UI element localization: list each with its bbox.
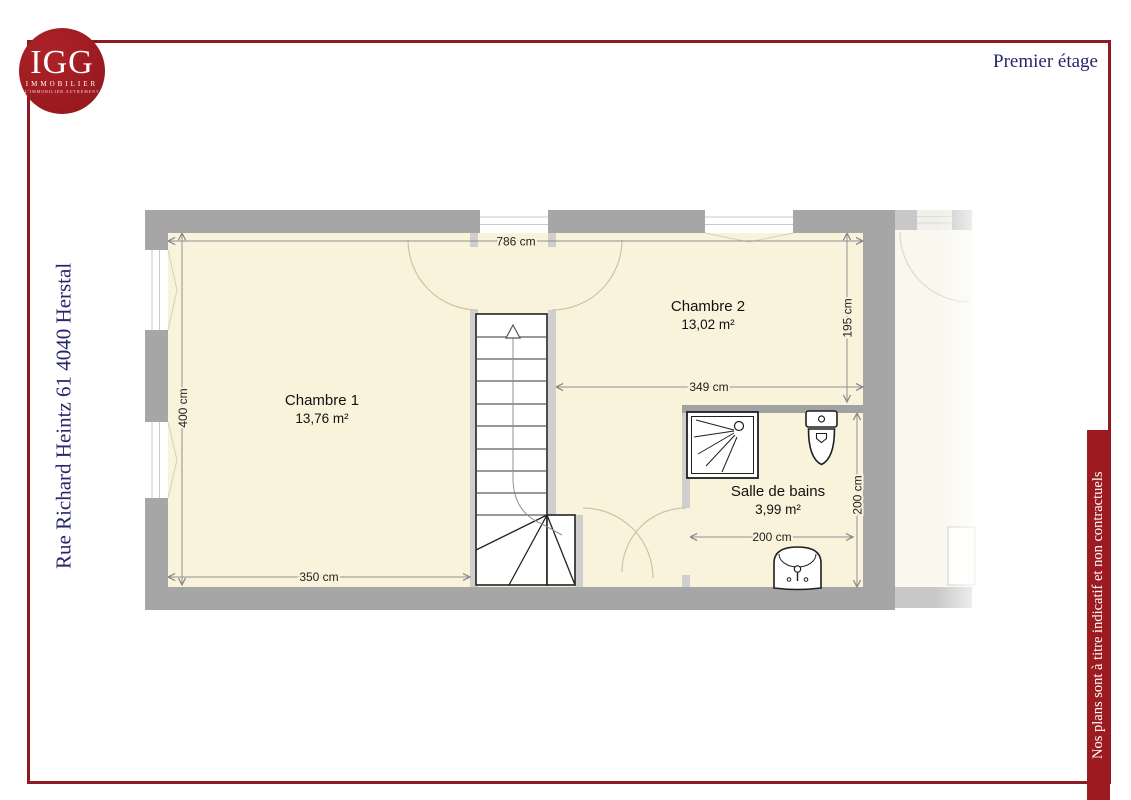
dim-label-chambre1-height: 400 cm [176, 388, 190, 427]
floor-plan: 786 cm 400 cm 350 cm 349 cm 195 cm 200 c… [130, 195, 990, 625]
shower-icon [687, 412, 758, 478]
room-label-chambre1: Chambre 1 [285, 392, 359, 409]
agency-logo: IGG IMMOBILIER L'IMMOBILIER AUTREMENT [19, 28, 105, 114]
dim-label-bathroom-height: 200 cm [851, 475, 865, 514]
room-area-bathroom: 3,99 m² [755, 502, 801, 517]
window-top-chambre2 [705, 210, 793, 233]
neighbour-fadeout [936, 195, 990, 625]
sink-icon [774, 547, 821, 590]
room-area-chambre1: 13,76 m² [295, 411, 349, 426]
dim-label-chambre2-height: 195 cm [841, 298, 855, 337]
room-label-bathroom: Salle de bains [731, 483, 825, 500]
logo-monogram: IGG [30, 48, 93, 78]
disclaimer-banner: Nos plans sont à titre indicatif et non … [1087, 430, 1110, 800]
window-left-lower [145, 422, 168, 498]
dim-label-chambre1-width: 350 cm [299, 570, 338, 584]
dim-label-bathroom-width: 200 cm [752, 530, 791, 544]
dim-label-chambre2-width: 349 cm [689, 380, 728, 394]
window-left-upper [145, 250, 168, 330]
property-address: Rue Richard Heintz 61 4040 Herstal [46, 240, 82, 592]
room-label-chambre2: Chambre 2 [671, 298, 745, 315]
room-area-chambre2: 13,02 m² [681, 317, 735, 332]
floor-title: Premier étage [993, 51, 1098, 73]
window-top-stairwell [480, 210, 548, 233]
logo-name: IMMOBILIER [26, 80, 98, 88]
logo-tagline: L'IMMOBILIER AUTREMENT [25, 89, 100, 94]
dim-label-overall-width: 786 cm [496, 235, 535, 249]
